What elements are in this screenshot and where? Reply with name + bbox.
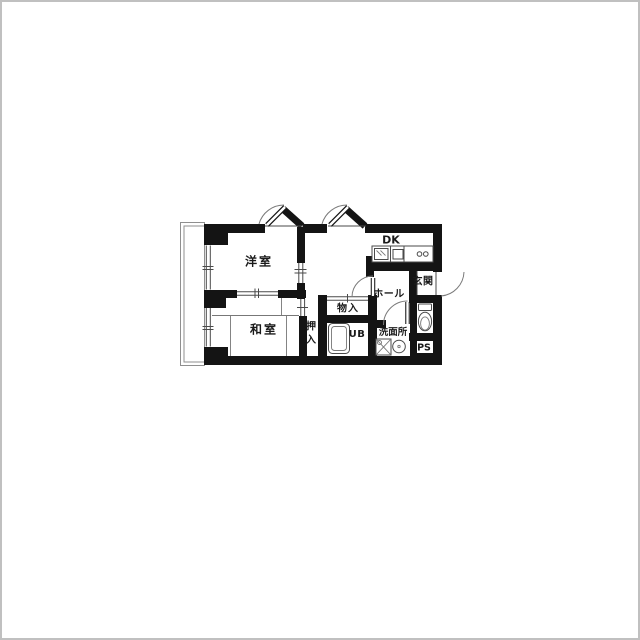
wall-segment bbox=[365, 224, 442, 233]
cooktop-plate bbox=[393, 250, 403, 260]
washbasin-icon bbox=[393, 340, 406, 353]
wall-segment bbox=[410, 303, 417, 357]
room-label-closet-top: 押 bbox=[306, 320, 316, 333]
room-label-storage: 物入 bbox=[337, 302, 359, 315]
wall-segment bbox=[204, 224, 265, 233]
wall-segment bbox=[318, 315, 377, 323]
wall-segment bbox=[433, 295, 442, 357]
room-label-japanese-room: 和室 bbox=[249, 322, 278, 337]
room-label-western-room: 洋室 bbox=[245, 254, 273, 269]
room-label-dk: DK bbox=[382, 234, 400, 247]
wall-segment bbox=[366, 262, 436, 271]
room-label-closet-bottom: 入 bbox=[306, 334, 316, 346]
room-label-pipe-space: PS bbox=[417, 343, 431, 354]
wall-segment bbox=[204, 290, 237, 298]
wall-segment bbox=[409, 333, 435, 341]
wall-segment bbox=[318, 295, 327, 357]
bathtub-icon bbox=[329, 324, 350, 354]
kitchen-sink-icon bbox=[375, 249, 389, 260]
wall-segment bbox=[204, 356, 442, 365]
room-label-washroom: 洗面所 bbox=[379, 326, 408, 338]
room-label-hall: ホール bbox=[373, 288, 405, 300]
kitchen-counter bbox=[372, 246, 433, 262]
room-label-entrance: 玄関 bbox=[413, 275, 434, 288]
room-label-unit-bath: UB bbox=[349, 329, 366, 340]
toilet-icon bbox=[418, 304, 431, 331]
wall-segment bbox=[278, 290, 306, 298]
floor-plan-image: 洋室 DK 玄関 ホール 物入 和室 押 入 UB 洗面所 PS bbox=[0, 0, 640, 640]
washing-machine-icon bbox=[376, 339, 391, 355]
wall-segment bbox=[204, 347, 228, 365]
wall-segment bbox=[297, 227, 305, 263]
wall-segment bbox=[303, 224, 327, 233]
wall-segment bbox=[409, 295, 435, 303]
